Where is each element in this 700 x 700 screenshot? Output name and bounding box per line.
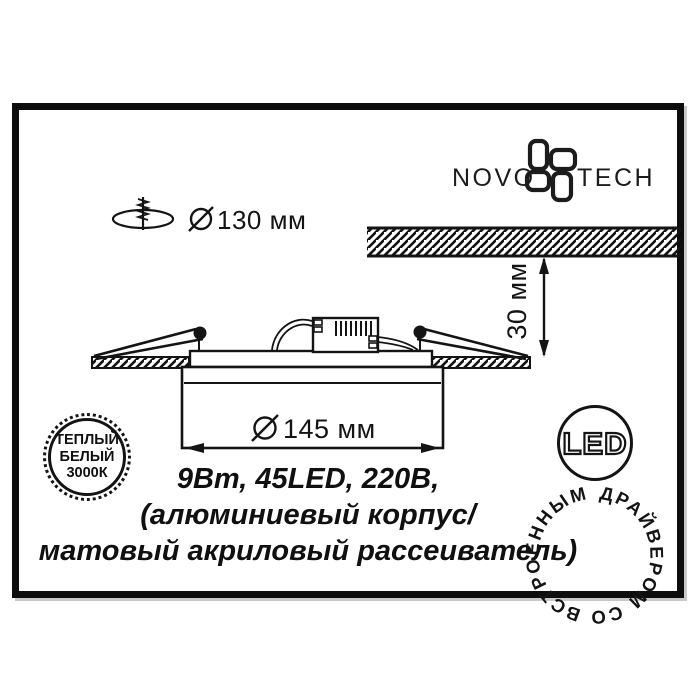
warm-badge-line3: 3000К [66,465,107,482]
drill-hole-icon [113,197,173,230]
driver-box [313,318,378,352]
fixture-flange [190,351,432,367]
technical-drawing: LED ДРАЙВЕРОМ СО ВСТРОЕННЫМ [0,0,700,700]
warm-white-badge-inner: ТЕПЛЫЙ БЕЛЫЙ 3000К [48,418,126,496]
spec-line-diffuser: матовый акриловый рассеиватель) [25,533,591,569]
ceiling-section [367,228,681,256]
cutout-diameter-label: 130 мм [217,205,306,236]
warm-badge-line1: ТЕПЛЫЙ [55,432,119,449]
warm-badge-line2: БЕЛЫЙ [60,449,115,466]
spec-line-housing: (алюминиевый корпус/ [25,497,591,533]
logo-text-novo: NOVO [452,164,536,193]
body-diameter-label: 145 мм [283,414,376,445]
spec-sheet: LED ДРАЙВЕРОМ СО ВСТРОЕННЫМ 130 мм 145 м… [0,0,700,700]
diameter-icon-cutout [189,207,213,231]
recess-depth-label: 30 мм [502,256,532,346]
recess-depth-dimension [539,257,549,357]
logo-text-tech: TECH [577,164,655,193]
led-badge-label: LED [563,426,628,461]
warm-white-badge: ТЕПЛЫЙ БЕЛЫЙ 3000К [43,413,131,501]
